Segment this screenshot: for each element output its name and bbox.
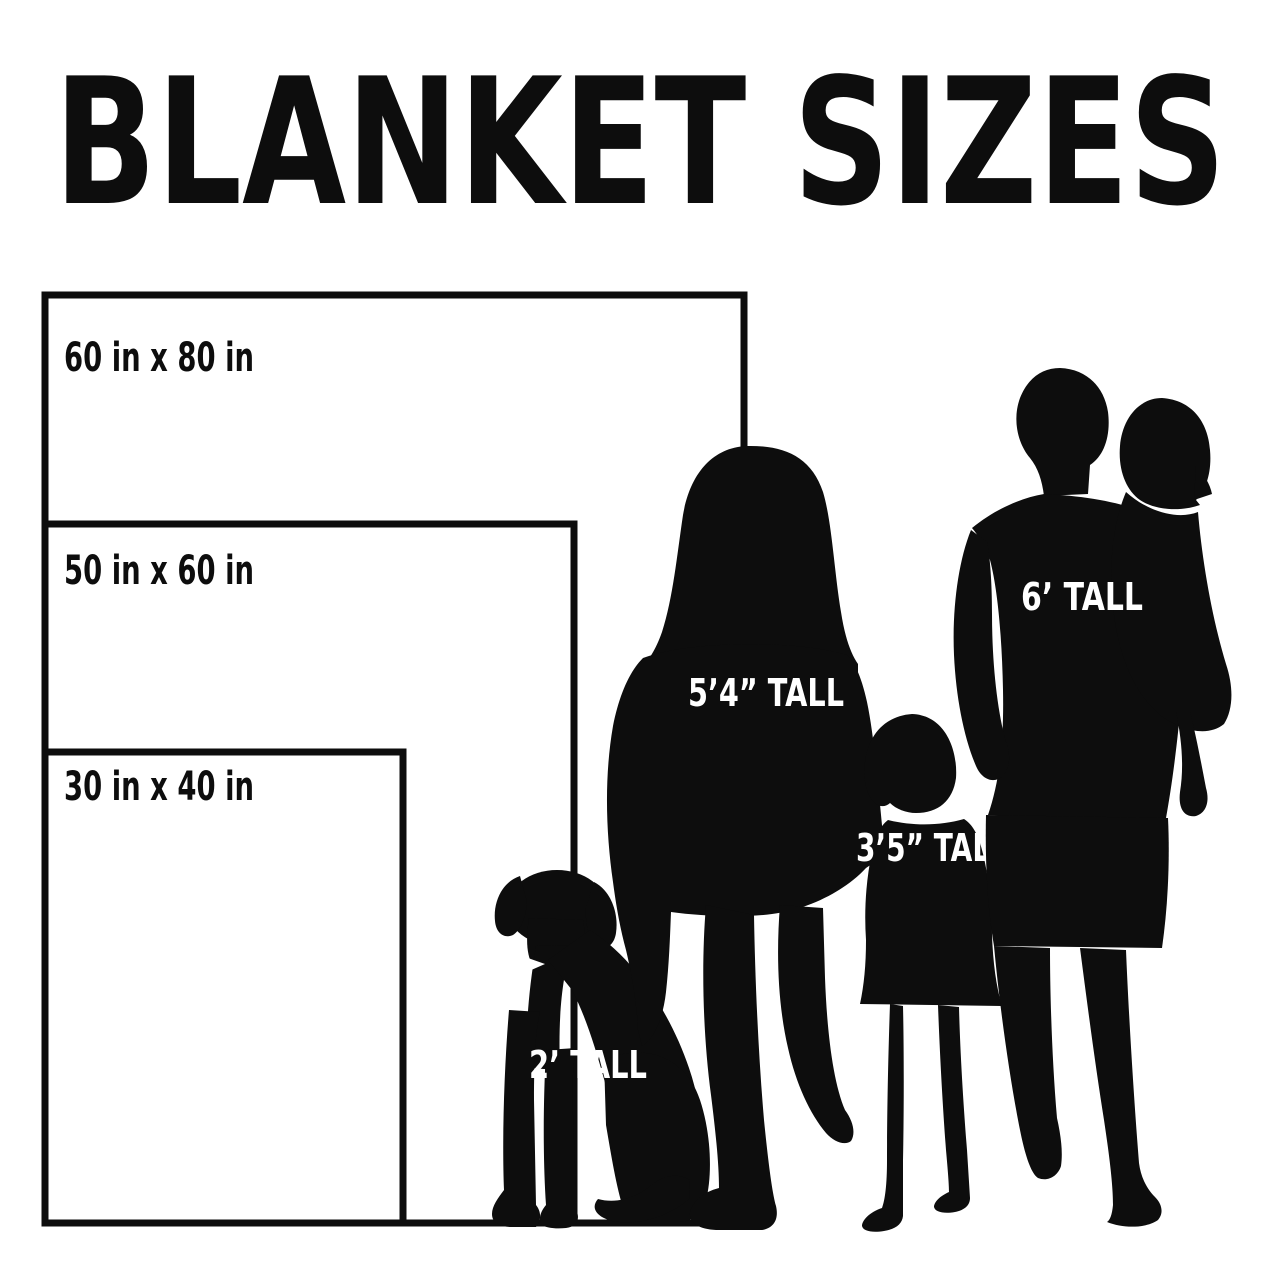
blanket-30x40: 30 in x 40 in (45, 752, 403, 1223)
blanket-label-50x60: 50 in x 60 in (64, 548, 254, 594)
child-height-label: 3’5” TALL (856, 826, 1008, 870)
blanket-size-chart: BLANKET SIZES 60 in x 80 in 50 in x 60 i… (0, 0, 1280, 1280)
blanket-rect-30x40 (45, 752, 403, 1223)
page-title: BLANKET SIZES (54, 42, 1226, 245)
man-height-label: 6’ TALL (1021, 575, 1143, 619)
blanket-label-30x40: 30 in x 40 in (64, 764, 254, 810)
man-hips (986, 815, 1169, 948)
woman-height-label: 5’4” TALL (688, 671, 844, 715)
dog-height-label: 2’ TALL (529, 1043, 647, 1087)
blanket-label-60x80: 60 in x 80 in (64, 335, 254, 381)
